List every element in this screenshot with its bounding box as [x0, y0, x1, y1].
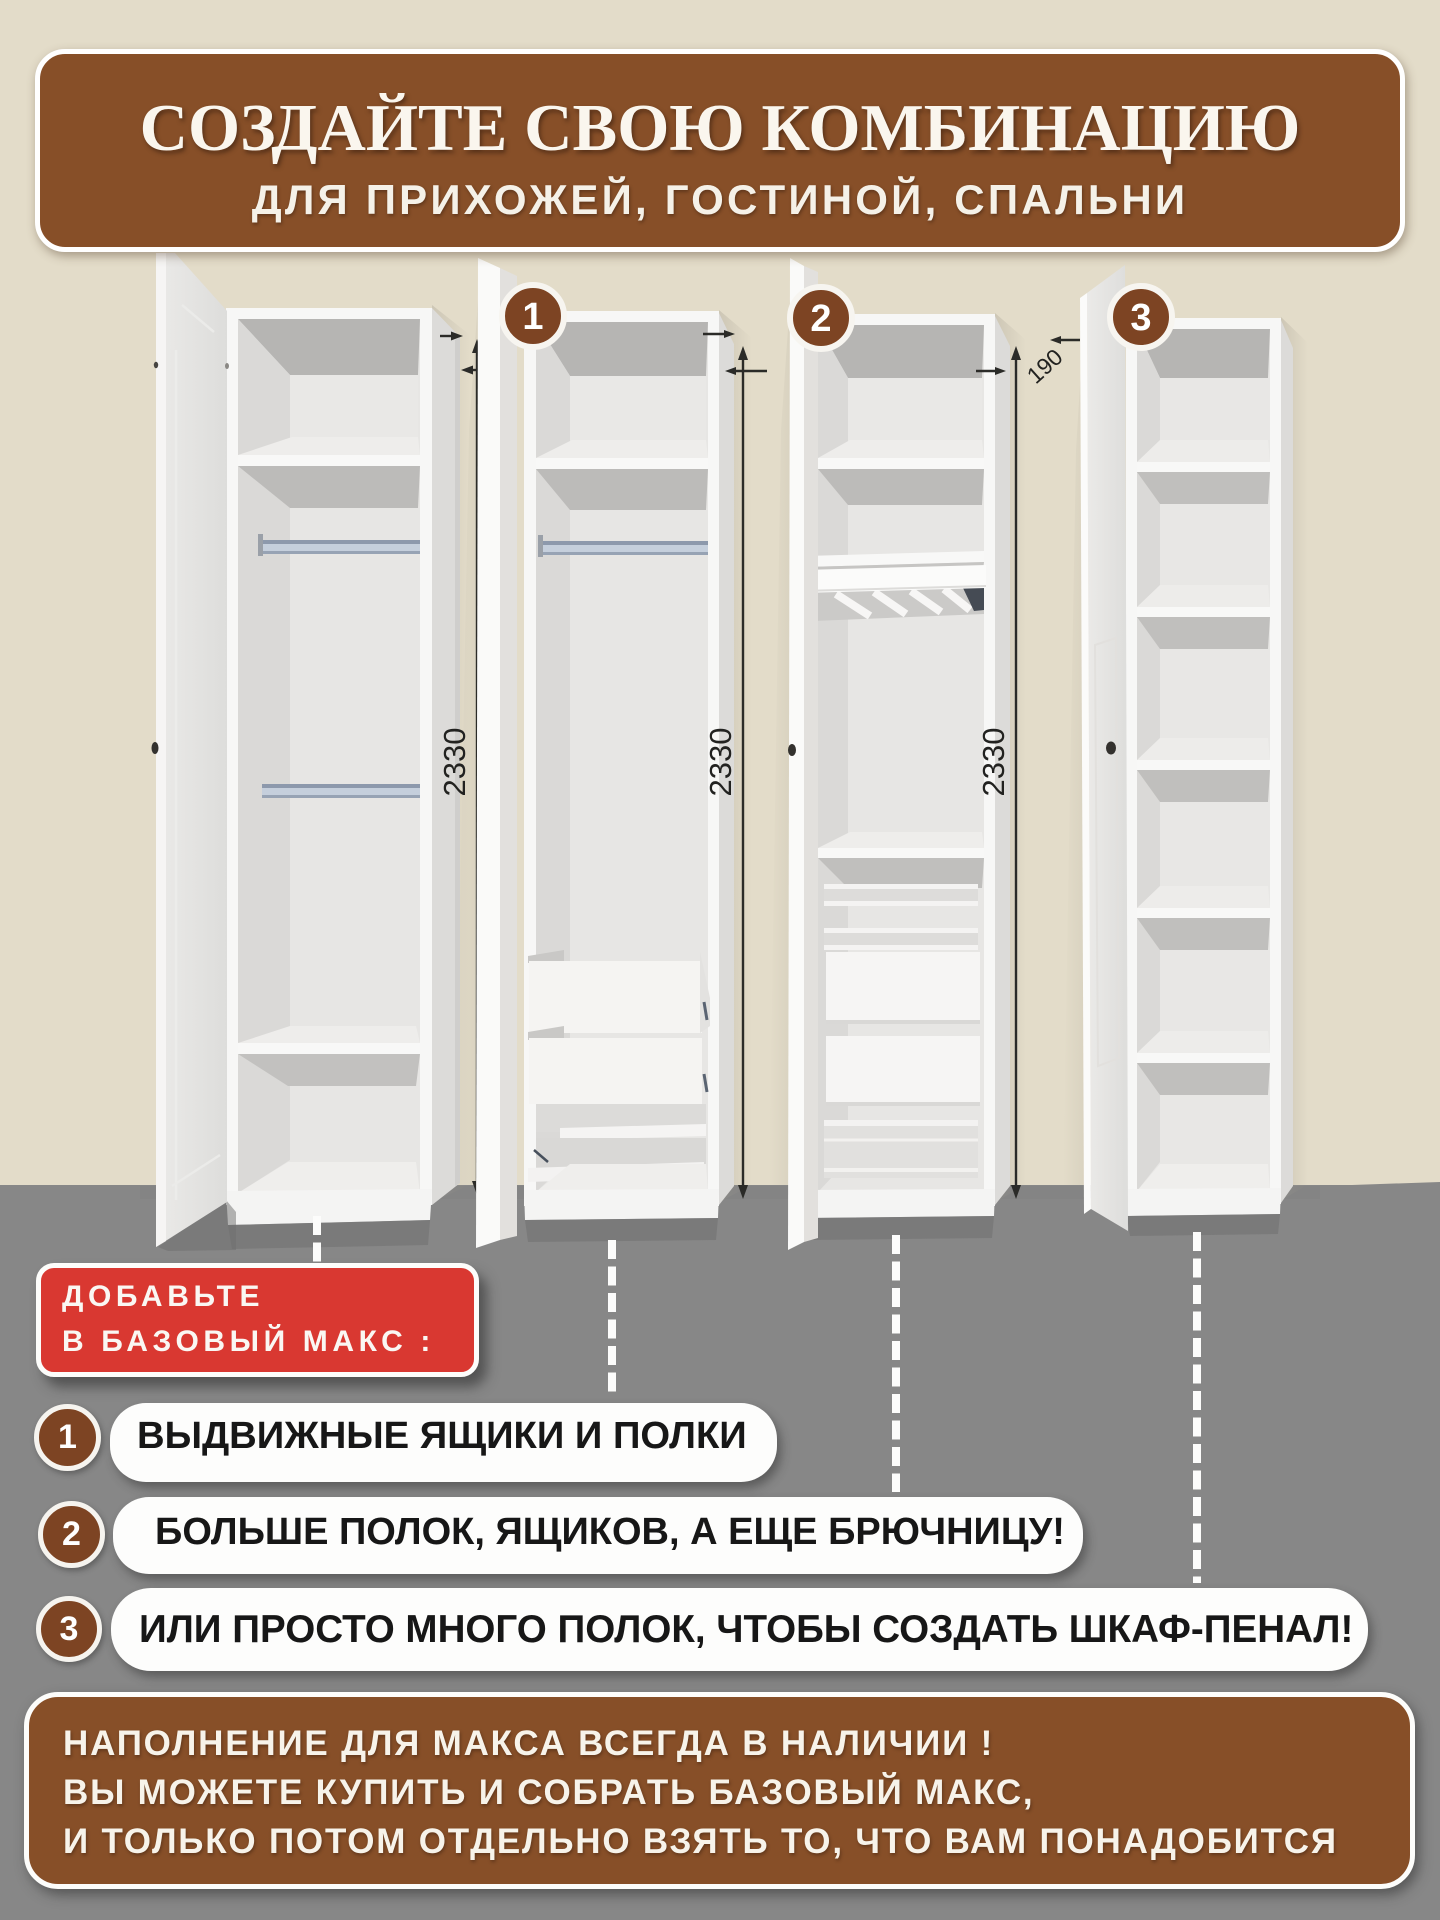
svg-text:1: 1: [522, 296, 543, 338]
svg-text:2: 2: [810, 298, 831, 340]
svg-text:2330: 2330: [703, 728, 738, 797]
svg-text:3: 3: [1130, 297, 1151, 339]
svg-text:190: 190: [1022, 344, 1068, 389]
svg-text:2330: 2330: [976, 728, 1011, 797]
svg-text:2330: 2330: [437, 728, 472, 797]
